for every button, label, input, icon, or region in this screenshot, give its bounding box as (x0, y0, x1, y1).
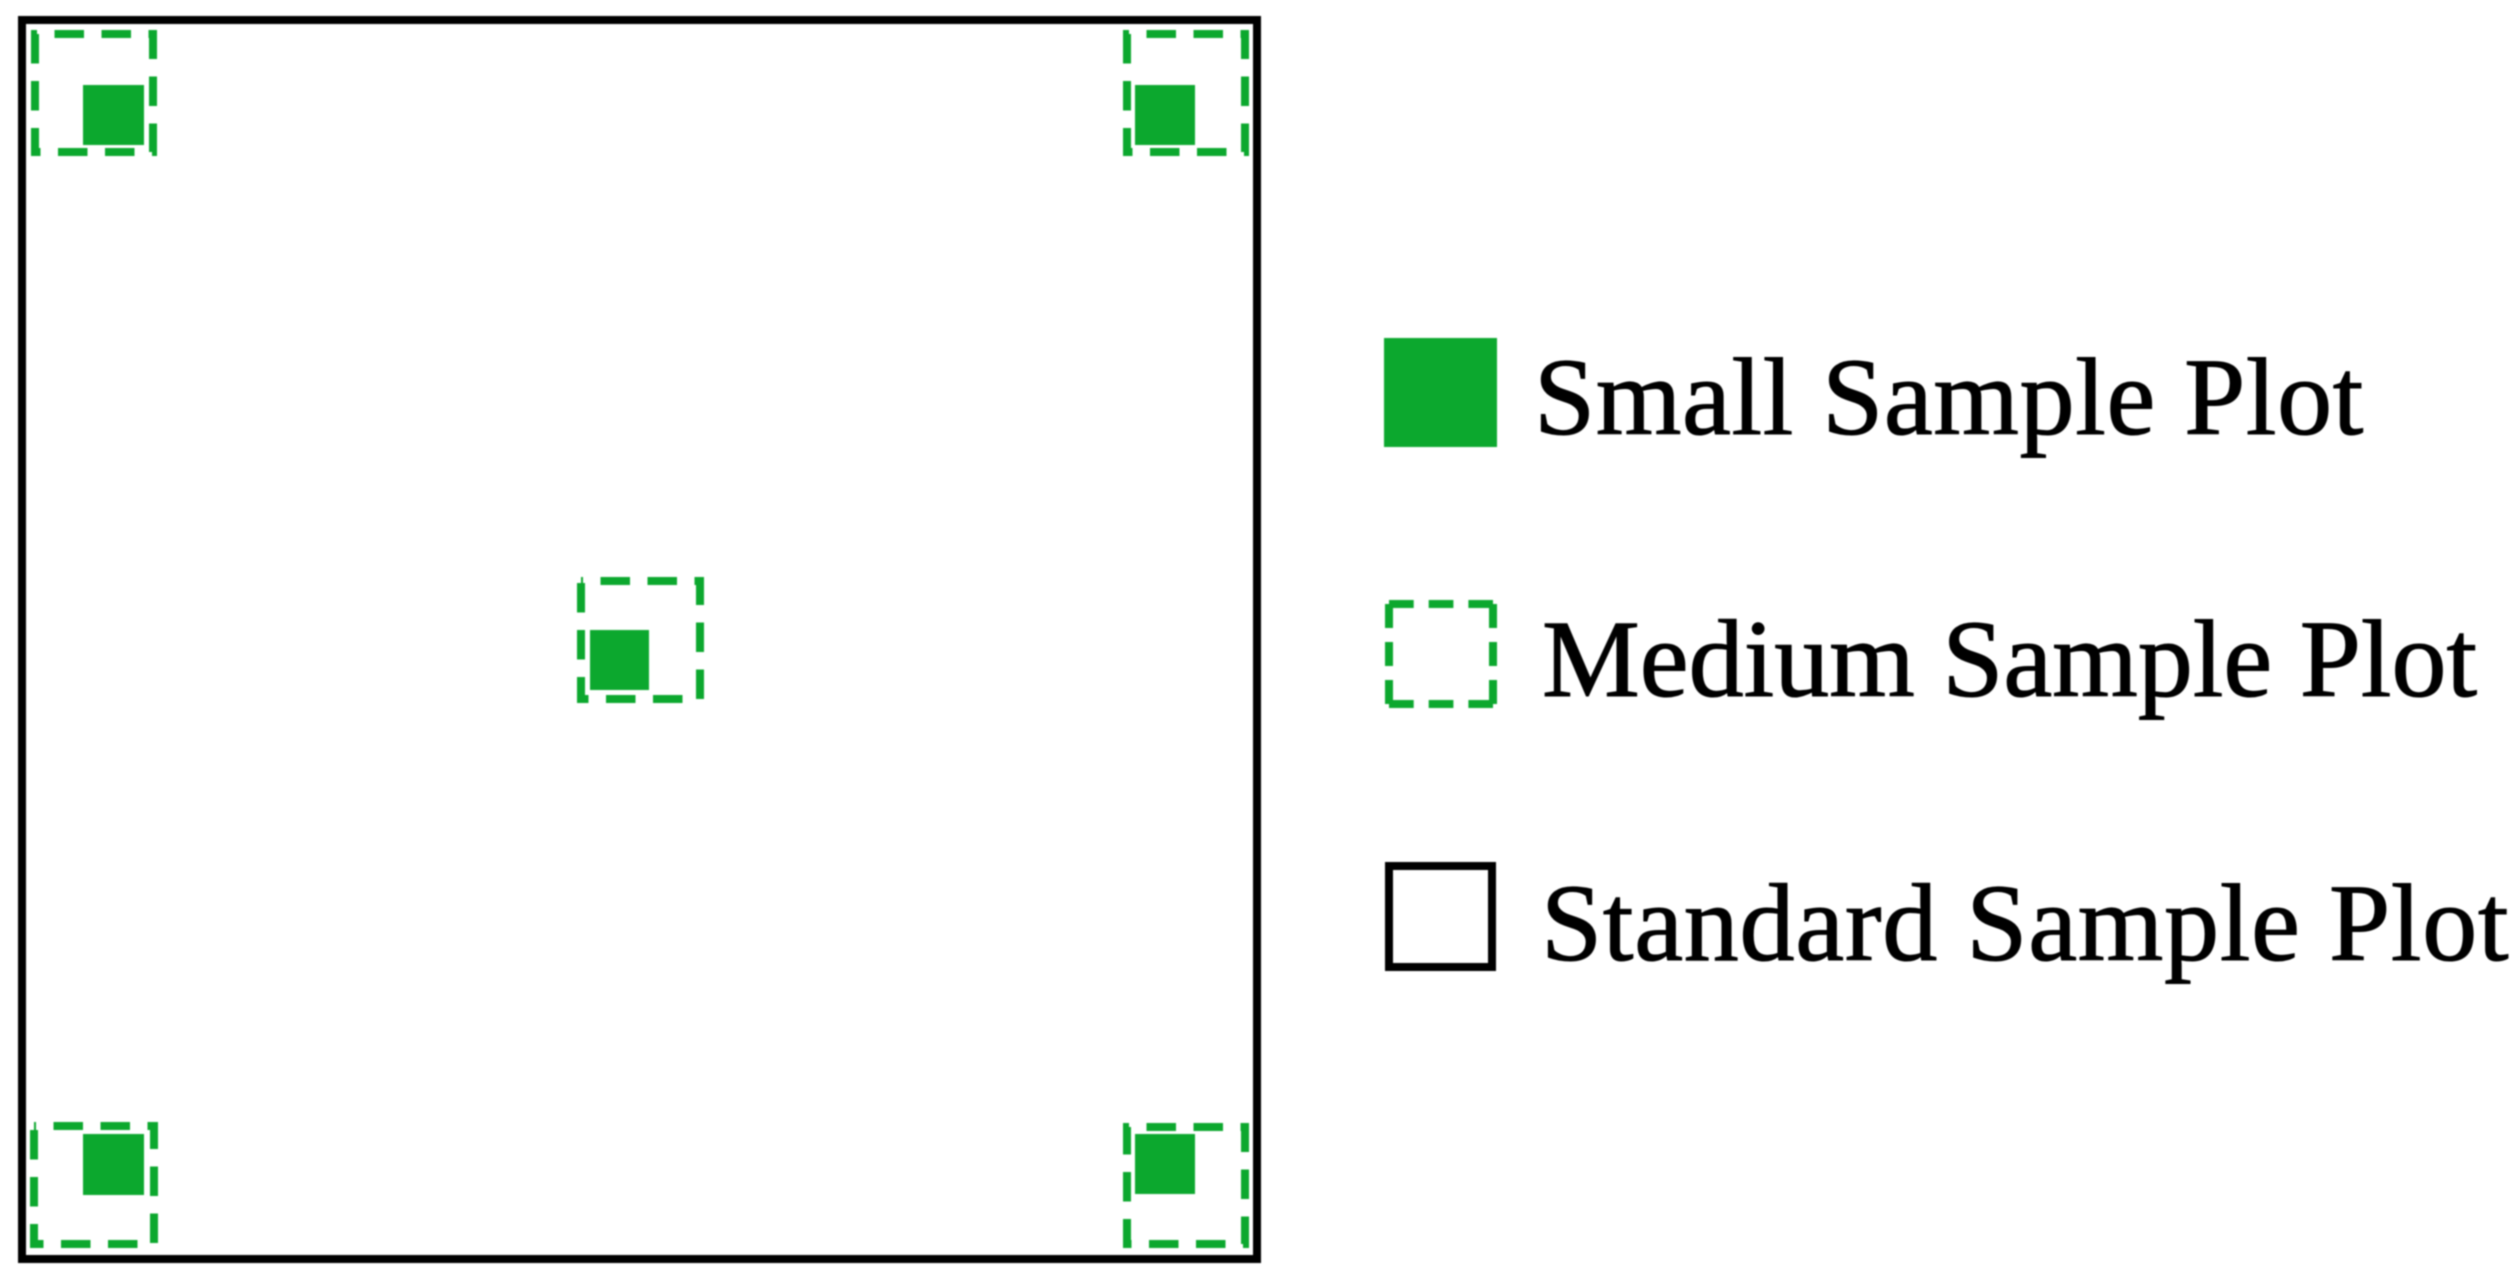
svg-text:Medium Sample Plot: Medium Sample Plot (1542, 598, 2477, 720)
svg-text:Small Sample Plot: Small Sample Plot (1534, 336, 2364, 458)
svg-text:Standard Sample Plot: Standard Sample Plot (1541, 862, 2509, 984)
